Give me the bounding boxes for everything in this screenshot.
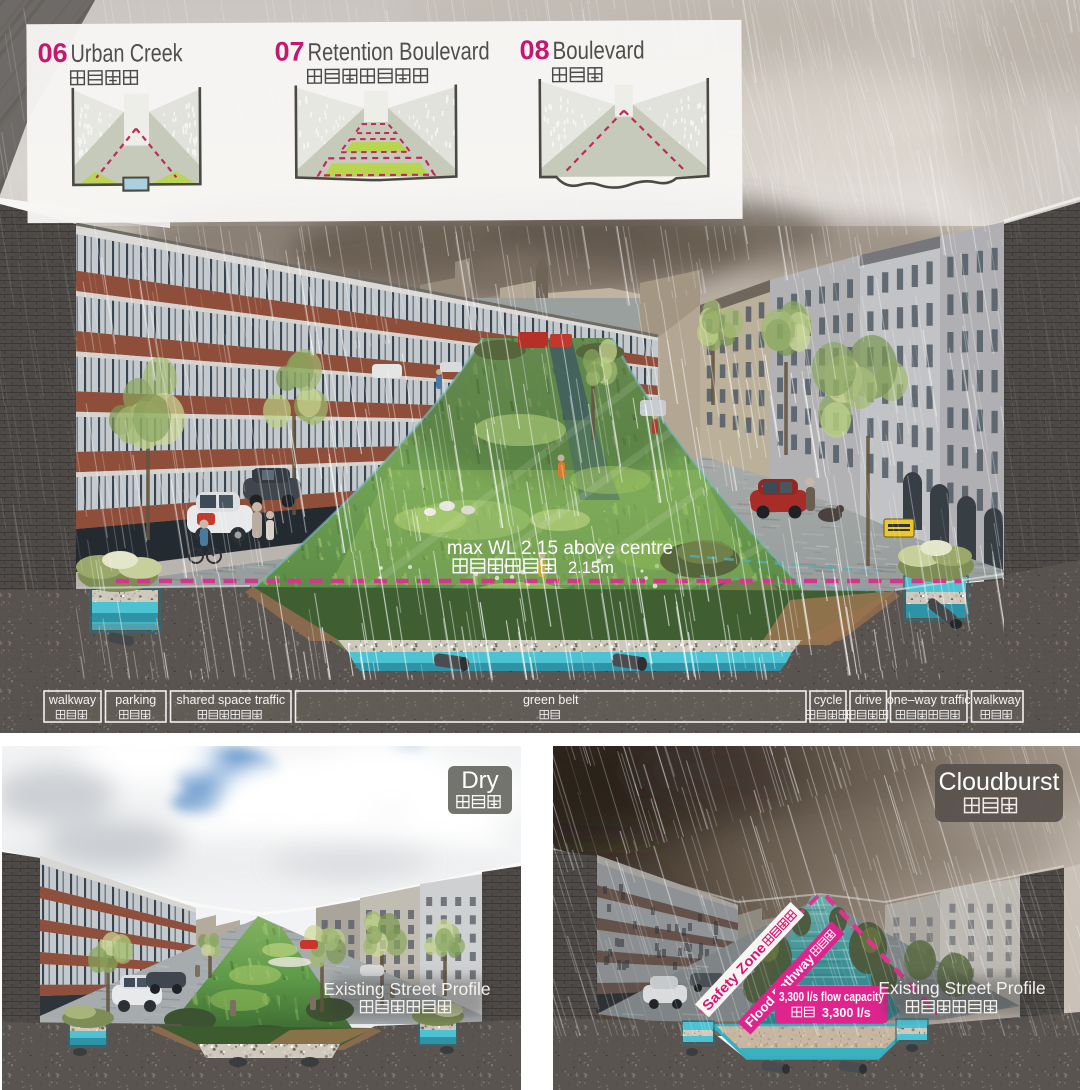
svg-text:Existing Street Profile: Existing Street Profile bbox=[878, 978, 1045, 998]
svg-text:walkway: walkway bbox=[48, 693, 97, 707]
svg-text:06: 06 bbox=[37, 38, 67, 68]
svg-text:drive: drive bbox=[855, 693, 882, 707]
svg-text:shared space traffic: shared space traffic bbox=[176, 693, 285, 707]
svg-text:3,300 l/s flow capacity: 3,300 l/s flow capacity bbox=[779, 989, 885, 1004]
svg-text:Existing Street Profile: Existing Street Profile bbox=[323, 979, 490, 999]
svg-text:parking: parking bbox=[115, 693, 156, 707]
svg-text:Retention Boulevard: Retention Boulevard bbox=[307, 37, 489, 66]
svg-text:Dry: Dry bbox=[461, 767, 498, 794]
svg-text:one–way traffic: one–way traffic bbox=[887, 693, 971, 707]
svg-text:08: 08 bbox=[519, 35, 549, 65]
svg-text:Cloudburst: Cloudburst bbox=[939, 768, 1060, 796]
svg-text:07: 07 bbox=[274, 36, 304, 66]
svg-text:green belt: green belt bbox=[523, 693, 579, 707]
svg-text:Urban Creek: Urban Creek bbox=[70, 39, 183, 68]
svg-text:cycle: cycle bbox=[814, 693, 843, 707]
svg-text:3,300 l/s: 3,300 l/s bbox=[822, 1006, 871, 1020]
svg-text:Boulevard: Boulevard bbox=[552, 36, 644, 65]
svg-text:walkway: walkway bbox=[973, 693, 1022, 707]
